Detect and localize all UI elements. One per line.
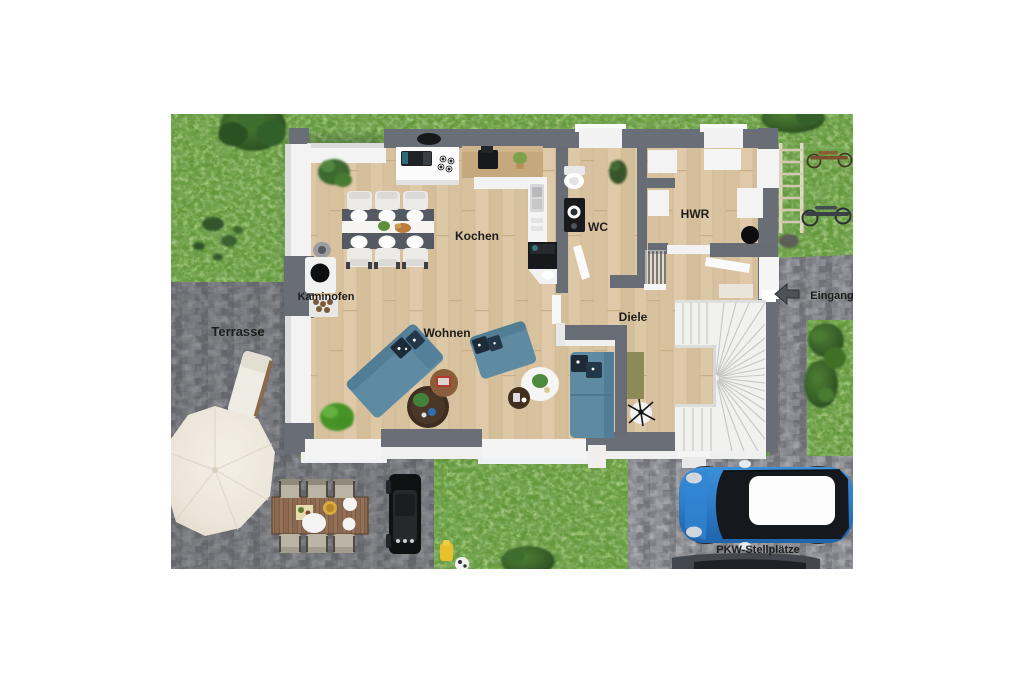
svg-text:Kochen: Kochen: [455, 229, 499, 243]
svg-text:Terrasse: Terrasse: [211, 324, 264, 339]
svg-text:Wohnen: Wohnen: [423, 326, 470, 340]
svg-text:Eingang: Eingang: [810, 290, 853, 302]
svg-text:PKW-Stellplätze: PKW-Stellplätze: [716, 544, 800, 556]
svg-text:Diele: Diele: [619, 310, 648, 324]
svg-text:HWR: HWR: [681, 207, 710, 221]
svg-text:Kaminofen: Kaminofen: [298, 291, 355, 303]
svg-text:WC: WC: [588, 220, 608, 234]
